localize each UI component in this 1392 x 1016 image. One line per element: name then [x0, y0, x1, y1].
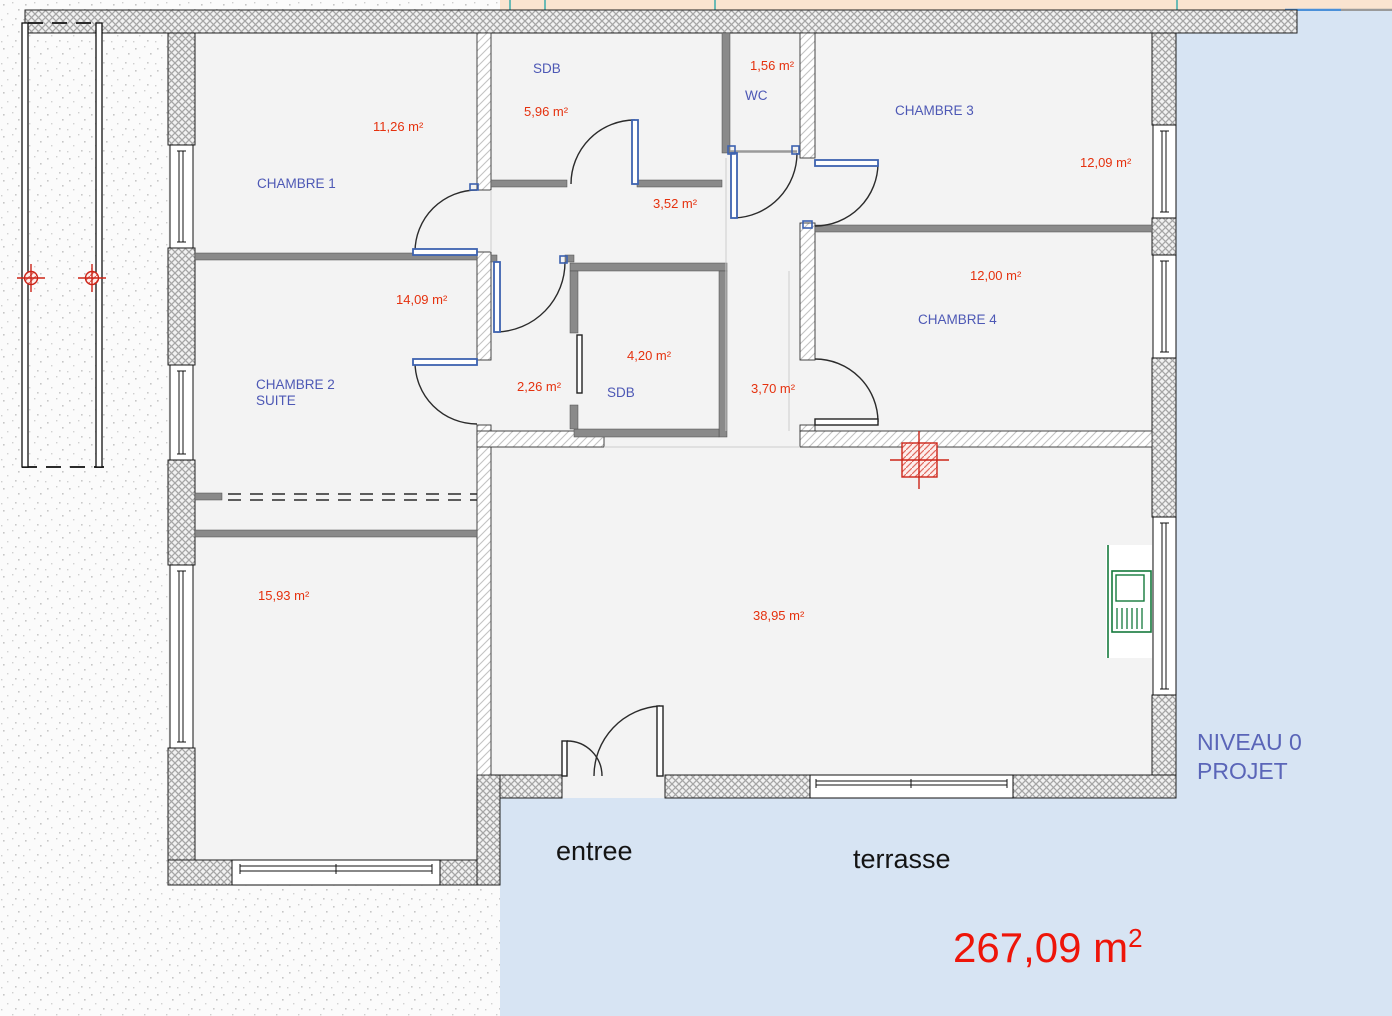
- stove-icon: [1106, 545, 1152, 658]
- room-area-chambre2: 14,09 m²: [396, 293, 447, 308]
- room-area-sdb1: 5,96 m²: [524, 105, 568, 120]
- room-area-chambre3: 12,09 m²: [1080, 156, 1131, 171]
- room-area-vestibule: 2,26 m²: [517, 380, 561, 395]
- room-area-hall: 3,52 m²: [653, 197, 697, 212]
- level-title-line2: PROJET: [1197, 758, 1288, 784]
- entrance-label: entree: [556, 836, 633, 867]
- room-name-sdb1: SDB: [533, 61, 561, 77]
- room-name-sdb2: SDB: [607, 385, 635, 401]
- room-name-wc: WC: [745, 88, 768, 104]
- room-area-couloir: 3,70 m²: [751, 382, 795, 397]
- floor-plan-drawing: [0, 0, 1392, 1016]
- room-name-chambre1: CHAMBRE 1: [257, 176, 336, 192]
- total-area-value: 267,09 m: [953, 924, 1128, 971]
- door-leaf-sdb2: [577, 335, 582, 393]
- room-area-salle: 15,93 m²: [258, 589, 309, 604]
- terrace-label: terrasse: [853, 844, 951, 875]
- room-area-sdb2: 4,20 m²: [627, 349, 671, 364]
- room-area-chambre1: 11,26 m²: [373, 120, 423, 135]
- room-name-chambre4: CHAMBRE 4: [918, 312, 997, 328]
- door-leaf-vestibule: [494, 262, 500, 332]
- room-name-chambre2: CHAMBRE 2SUITE: [256, 377, 335, 408]
- room-name-chambre2-line2: SUITE: [256, 393, 296, 408]
- level-title: NIVEAU 0PROJET: [1197, 728, 1302, 786]
- door-leaf-chambre4: [815, 419, 878, 425]
- door-leaf-entry-main: [657, 706, 663, 776]
- peach-strip: [500, 0, 1392, 11]
- door-leaf-sdb1: [632, 120, 638, 184]
- door-leaf-wc: [731, 153, 737, 218]
- room-area-wc: 1,56 m²: [750, 59, 794, 74]
- total-area-exponent: 2: [1128, 923, 1142, 953]
- floor-plan-page: CHAMBRE 1 11,26 m² SDB 5,96 m² 1,56 m² W…: [0, 0, 1392, 1016]
- room-area-chambre4: 12,00 m²: [970, 269, 1021, 284]
- room-name-chambre2-line1: CHAMBRE 2: [256, 377, 335, 392]
- level-title-line1: NIVEAU 0: [1197, 729, 1302, 755]
- room-area-sejour: 38,95 m²: [753, 609, 804, 624]
- door-leaf-entry-small: [562, 741, 567, 776]
- door-leaf-chambre3: [815, 160, 878, 166]
- room-name-chambre3: CHAMBRE 3: [895, 103, 974, 119]
- total-area-label: 267,09 m2: [953, 924, 1143, 972]
- door-leaf-chambre2: [413, 359, 477, 365]
- door-leaf-chambre1: [413, 249, 477, 255]
